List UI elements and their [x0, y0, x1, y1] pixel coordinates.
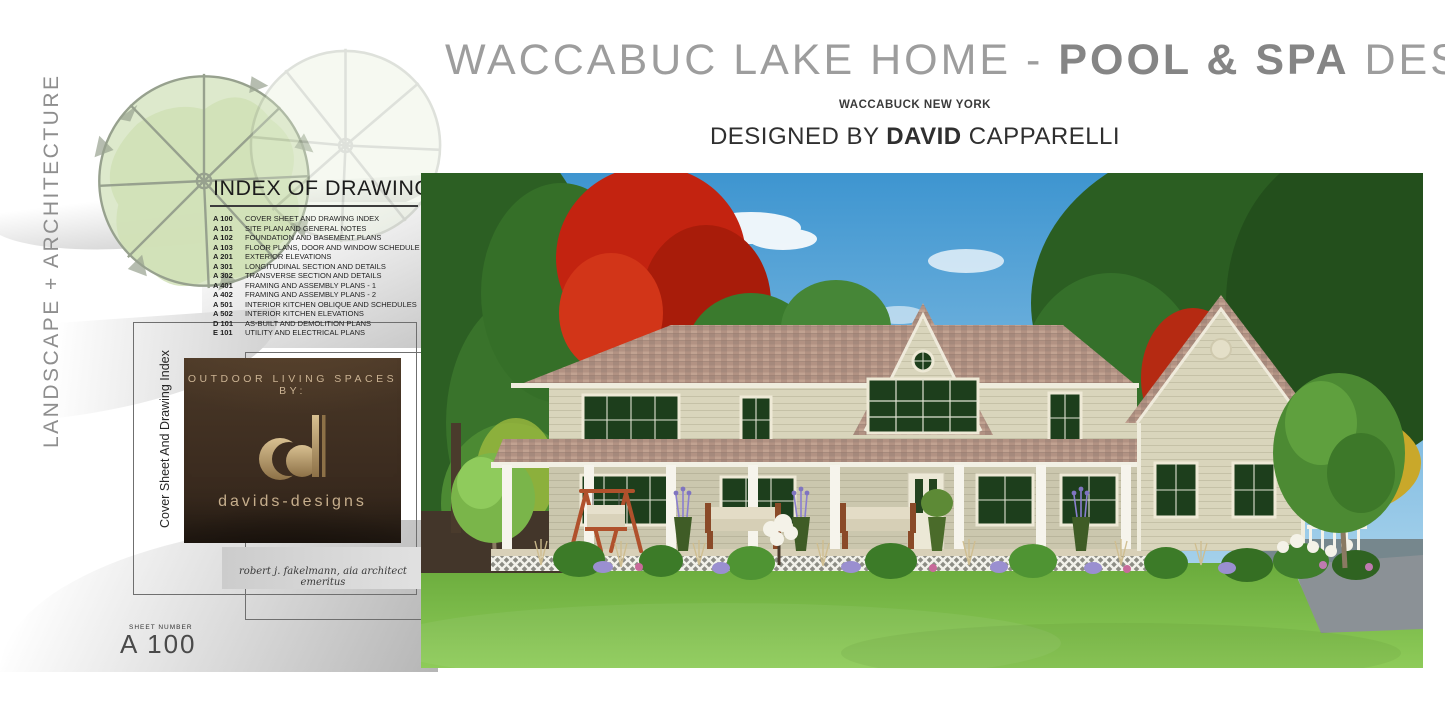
- drawing-code: A 301: [213, 262, 245, 272]
- drawing-title: FRAMING AND ASSEMBLY PLANS - 1: [245, 281, 421, 291]
- designer-credit: DESIGNED BY DAVID CAPPARELLI: [455, 123, 1375, 151]
- index-row: A 301 LONGITUDINAL SECTION AND DETAILS: [213, 262, 421, 272]
- index-title-rule: [210, 205, 418, 207]
- cover-sheet-page: LANDSCAPE + ARCHITECTURE Cover Sheet And…: [0, 0, 1445, 723]
- sheet-number-block: SHEET NUMBER A 100: [120, 624, 197, 657]
- index-row: A 101 SITE PLAN AND GENERAL NOTES: [213, 224, 421, 234]
- drawing-code: A 501: [213, 300, 245, 310]
- designer-first-name: DAVID: [886, 123, 961, 150]
- index-row: A 302 TRANSVERSE SECTION AND DETAILS: [213, 271, 421, 281]
- project-location: WACCABUCK NEW YORK: [455, 99, 1375, 111]
- sheet-number-value: A 100: [120, 631, 197, 657]
- index-row: A 103 FLOOR PLANS, DOOR AND WINDOW SCHED…: [213, 243, 421, 253]
- drawing-title: FLOOR PLANS, DOOR AND WINDOW SCHEDULE: [245, 243, 421, 253]
- project-title-strong: POOL & SPA: [1058, 36, 1349, 84]
- drawing-title: SITE PLAN AND GENERAL NOTES: [245, 224, 421, 234]
- drawing-code: A 502: [213, 309, 245, 319]
- index-row: A 501 INTERIOR KITCHEN OBLIQUE AND SCHED…: [213, 300, 421, 310]
- drawing-title: AS-BUILT AND DEMOLITION PLANS: [245, 319, 421, 329]
- index-row: A 100 COVER SHEET AND DRAWING INDEX: [213, 214, 421, 224]
- designer-last-name: CAPPARELLI: [962, 123, 1120, 150]
- index-row: A 502 INTERIOR KITCHEN ELEVATIONS: [213, 309, 421, 319]
- architect-signature: robert j. fakelmann, aia architect emeri…: [222, 547, 424, 588]
- drawing-title: FOUNDATION AND BASEMENT PLANS: [245, 233, 421, 243]
- index-row: A 201 EXTERIOR ELEVATIONS: [213, 252, 421, 262]
- drawing-code: A 102: [213, 233, 245, 243]
- index-row: A 401 FRAMING AND ASSEMBLY PLANS - 1: [213, 281, 421, 291]
- index-of-drawings: INDEX OF DRAWINGS A 100 COVER SHEET AND …: [213, 176, 421, 338]
- drawing-code: A 401: [213, 281, 245, 291]
- house-rendering-image: [421, 173, 1423, 668]
- project-title: WACCABUC LAKE HOME - POOL & SPA DESIGN: [445, 36, 1385, 85]
- drawing-title: FRAMING AND ASSEMBLY PLANS - 2: [245, 290, 421, 300]
- index-row: D 101 AS-BUILT AND DEMOLITION PLANS: [213, 319, 421, 329]
- drawing-title: UTILITY AND ELECTRICAL PLANS: [245, 328, 421, 338]
- brand-name: davids-designs: [184, 493, 401, 511]
- project-title-part1: WACCABUC LAKE HOME -: [445, 36, 1058, 84]
- index-rows: A 100 COVER SHEET AND DRAWING INDEX A 10…: [213, 214, 421, 338]
- drawing-title: COVER SHEET AND DRAWING INDEX: [245, 214, 421, 224]
- architect-signature-band: robert j. fakelmann, aia architect emeri…: [222, 547, 424, 589]
- brand-panel: OUTDOOR LIVING SPACES BY: davids-designs: [184, 358, 401, 543]
- project-title-part3: DESIGN: [1350, 36, 1445, 84]
- sheet-title-vertical-label: Cover Sheet And Drawing Index: [158, 356, 172, 528]
- davids-designs-logo-icon: [250, 407, 336, 487]
- index-row: A 402 FRAMING AND ASSEMBLY PLANS - 2: [213, 290, 421, 300]
- drawing-code: A 402: [213, 290, 245, 300]
- drawing-title: INTERIOR KITCHEN OBLIQUE AND SCHEDULES: [245, 300, 421, 310]
- drawing-code: A 101: [213, 224, 245, 234]
- designer-prefix: DESIGNED BY: [710, 123, 886, 150]
- index-row: A 102 FOUNDATION AND BASEMENT PLANS: [213, 233, 421, 243]
- drawing-code: D 101: [213, 319, 245, 329]
- drawing-title: LONGITUDINAL SECTION AND DETAILS: [245, 262, 421, 272]
- index-title: INDEX OF DRAWINGS: [213, 176, 421, 201]
- drawing-code: E 101: [213, 328, 245, 338]
- drawing-code: A 302: [213, 271, 245, 281]
- drawing-code: A 103: [213, 243, 245, 253]
- discipline-label: LANDSCAPE + ARCHITECTURE: [40, 158, 64, 448]
- drawing-code: A 201: [213, 252, 245, 262]
- index-row: E 101 UTILITY AND ELECTRICAL PLANS: [213, 328, 421, 338]
- drawing-title: TRANSVERSE SECTION AND DETAILS: [245, 271, 421, 281]
- brand-heading: OUTDOOR LIVING SPACES BY:: [184, 373, 401, 397]
- drawing-code: A 100: [213, 214, 245, 224]
- drawing-title: EXTERIOR ELEVATIONS: [245, 252, 421, 262]
- drawing-title: INTERIOR KITCHEN ELEVATIONS: [245, 309, 421, 319]
